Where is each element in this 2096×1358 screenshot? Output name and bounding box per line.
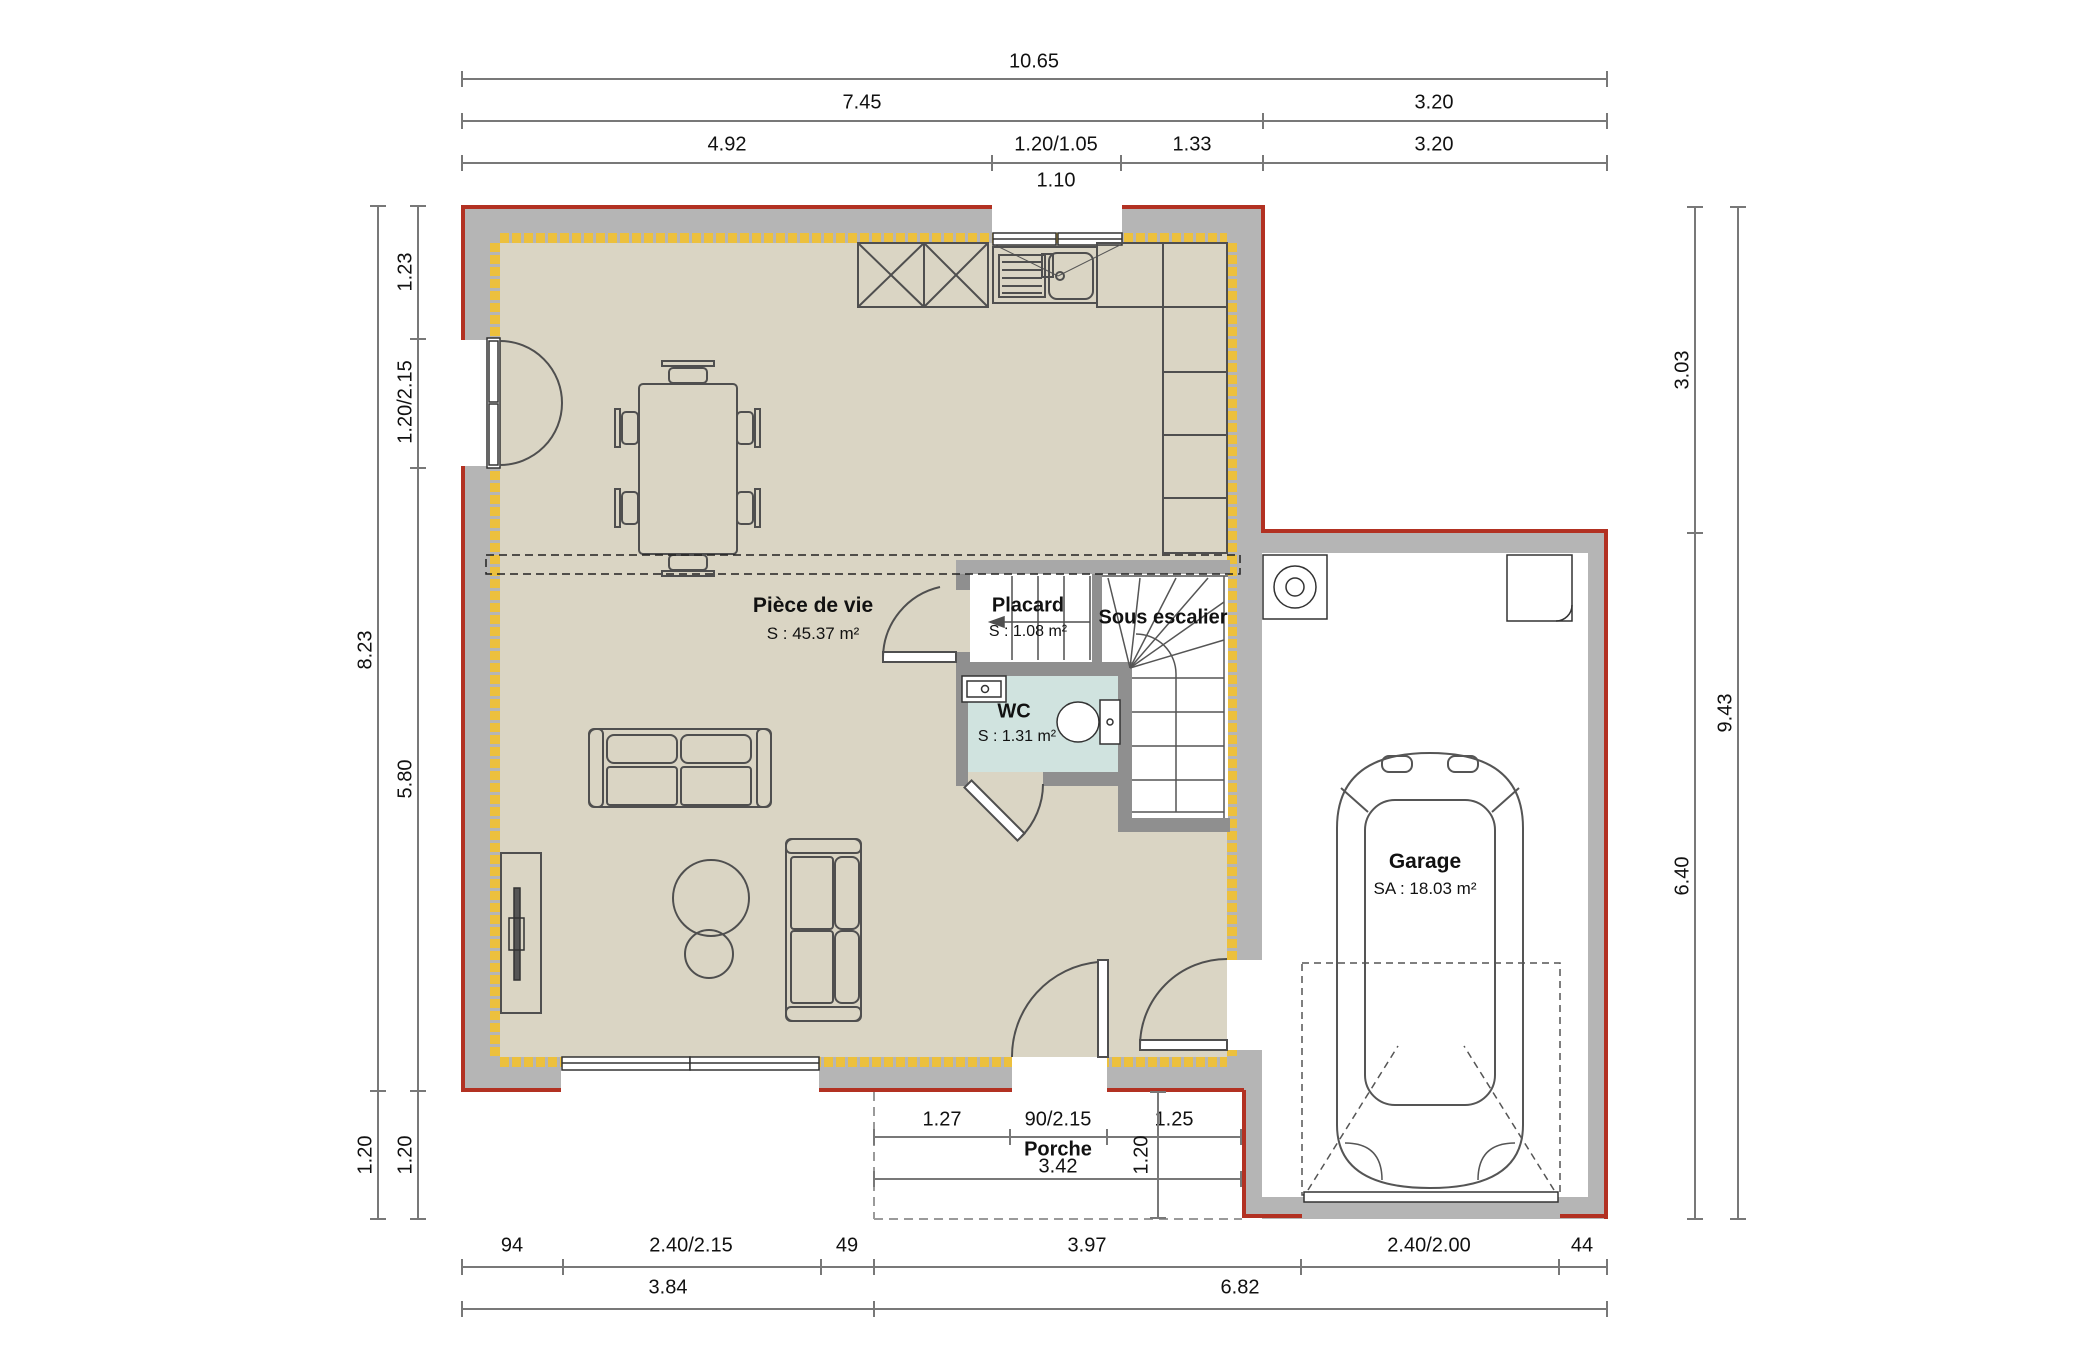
garage-door [1304, 1192, 1558, 1202]
french-door [487, 338, 562, 468]
dim-tick [1150, 1091, 1166, 1093]
dim-label: 6.82 [1221, 1277, 1260, 1300]
placard-area: S : 1.08 m² [989, 623, 1067, 641]
dim-tick [1606, 113, 1608, 129]
parking-dashed-outline [1302, 963, 1560, 1195]
dim-label: 8.23 [355, 631, 378, 670]
dim-tick [1687, 1218, 1703, 1220]
dim-tick [461, 1301, 463, 1317]
dim-line [462, 78, 1607, 80]
dim-tick [461, 71, 463, 87]
dim-tick [1687, 532, 1703, 534]
water-heater [1263, 555, 1327, 619]
dim-label: 3.97 [1068, 1235, 1107, 1258]
dim-line [874, 1136, 1241, 1138]
dim-label: 3.84 [649, 1277, 688, 1300]
dim-tick [1262, 155, 1264, 171]
dim-label: 2.40/2.00 [1387, 1235, 1470, 1258]
dim-label: 3.42 [1039, 1156, 1078, 1179]
dim-tick [410, 338, 426, 340]
dim-label: 3.20 [1415, 92, 1454, 115]
garage-area: SA : 18.03 m² [1374, 879, 1477, 899]
dim-tick [873, 1129, 875, 1145]
dim-tick [1606, 1259, 1608, 1275]
dim-label: 94 [501, 1235, 523, 1258]
dim-tick [1606, 71, 1608, 87]
dim-tick [461, 1259, 463, 1275]
garage-appliance [1507, 555, 1572, 621]
dim-tick [1300, 1259, 1302, 1275]
dim-tick [410, 1090, 426, 1092]
dim-line [1157, 1092, 1159, 1219]
dim-tick [1120, 155, 1122, 171]
dim-tick [1687, 206, 1703, 208]
dim-tick [1606, 155, 1608, 171]
dim-tick [1106, 1129, 1108, 1145]
dim-label: 49 [836, 1235, 858, 1258]
dim-label: 3.20 [1415, 134, 1454, 157]
dim-tick [370, 1218, 386, 1220]
garage-access-door [1140, 959, 1227, 1050]
dim-label: 1.10 [1037, 170, 1076, 193]
dim-label: 1.27 [923, 1109, 962, 1132]
garage-label: Garage [1389, 850, 1461, 874]
dim-label: 1.25 [1155, 1109, 1194, 1132]
entry-door [1012, 960, 1108, 1057]
dim-tick [1558, 1259, 1560, 1275]
dim-label: 1.20 [355, 1136, 378, 1175]
wc-area: S : 1.31 m² [978, 728, 1056, 746]
dim-tick [461, 155, 463, 171]
dim-tick [1730, 1218, 1746, 1220]
dim-label: 6.40 [1672, 857, 1695, 896]
wc-label: WC [997, 701, 1030, 724]
dim-label: 3.03 [1672, 351, 1695, 390]
dim-label: 4.92 [708, 134, 747, 157]
dim-tick [370, 1090, 386, 1092]
dim-tick [562, 1259, 564, 1275]
dim-label: 10.65 [1009, 51, 1059, 74]
dim-tick [410, 205, 426, 207]
placard-symbol [883, 576, 1090, 662]
living-room-label: Pièce de vie [753, 594, 873, 618]
living-window [562, 1057, 819, 1070]
dim-tick [1009, 1129, 1011, 1145]
dim-line [462, 1266, 1607, 1268]
floor-plan: Pièce de vie S : 45.37 m² Placard S : 1.… [0, 0, 2096, 1358]
dim-label: 7.45 [843, 92, 882, 115]
living-room-area: S : 45.37 m² [767, 624, 860, 644]
dim-line [417, 206, 419, 1219]
dim-label: 90/2.15 [1025, 1109, 1092, 1132]
dim-label: 44 [1571, 1235, 1593, 1258]
dim-label: 1.23 [395, 253, 418, 292]
car-symbol [1337, 753, 1523, 1188]
window-swing-lines [995, 245, 1120, 276]
dim-tick [1606, 1301, 1608, 1317]
dim-label: 5.80 [395, 760, 418, 799]
dim-line [462, 120, 1607, 122]
dim-tick [1150, 1217, 1166, 1219]
dim-tick [1240, 1129, 1242, 1145]
dim-tick [873, 1259, 875, 1275]
tv-symbol [509, 888, 524, 980]
dim-tick [1262, 113, 1264, 129]
dim-label: 1.20 [395, 1136, 418, 1175]
dim-line [462, 162, 1607, 164]
dim-tick [873, 1301, 875, 1317]
under-stairs-label: Sous escalier [1099, 607, 1228, 630]
dim-tick [461, 113, 463, 129]
dim-tick [410, 467, 426, 469]
upper-floor-dashed-outline [486, 555, 1240, 574]
wc-door [964, 780, 1043, 840]
dim-tick [820, 1259, 822, 1275]
dim-line [377, 206, 379, 1219]
dim-label: 1.20 [1131, 1136, 1154, 1175]
kitchen-counter [858, 243, 1227, 553]
dim-tick [1240, 1171, 1242, 1187]
dim-label: 2.40/2.15 [649, 1235, 732, 1258]
dim-label: 1.20/2.15 [395, 360, 418, 443]
dim-line [462, 1308, 1607, 1310]
dim-tick [873, 1171, 875, 1187]
dim-tick [1730, 206, 1746, 208]
dim-label: 9.43 [1715, 694, 1738, 733]
placard-label: Placard [992, 595, 1064, 618]
dim-tick [370, 205, 386, 207]
dim-tick [991, 155, 993, 171]
dim-label: 1.33 [1173, 134, 1212, 157]
dim-label: 1.20/1.05 [1014, 134, 1097, 157]
dim-tick [410, 1218, 426, 1220]
